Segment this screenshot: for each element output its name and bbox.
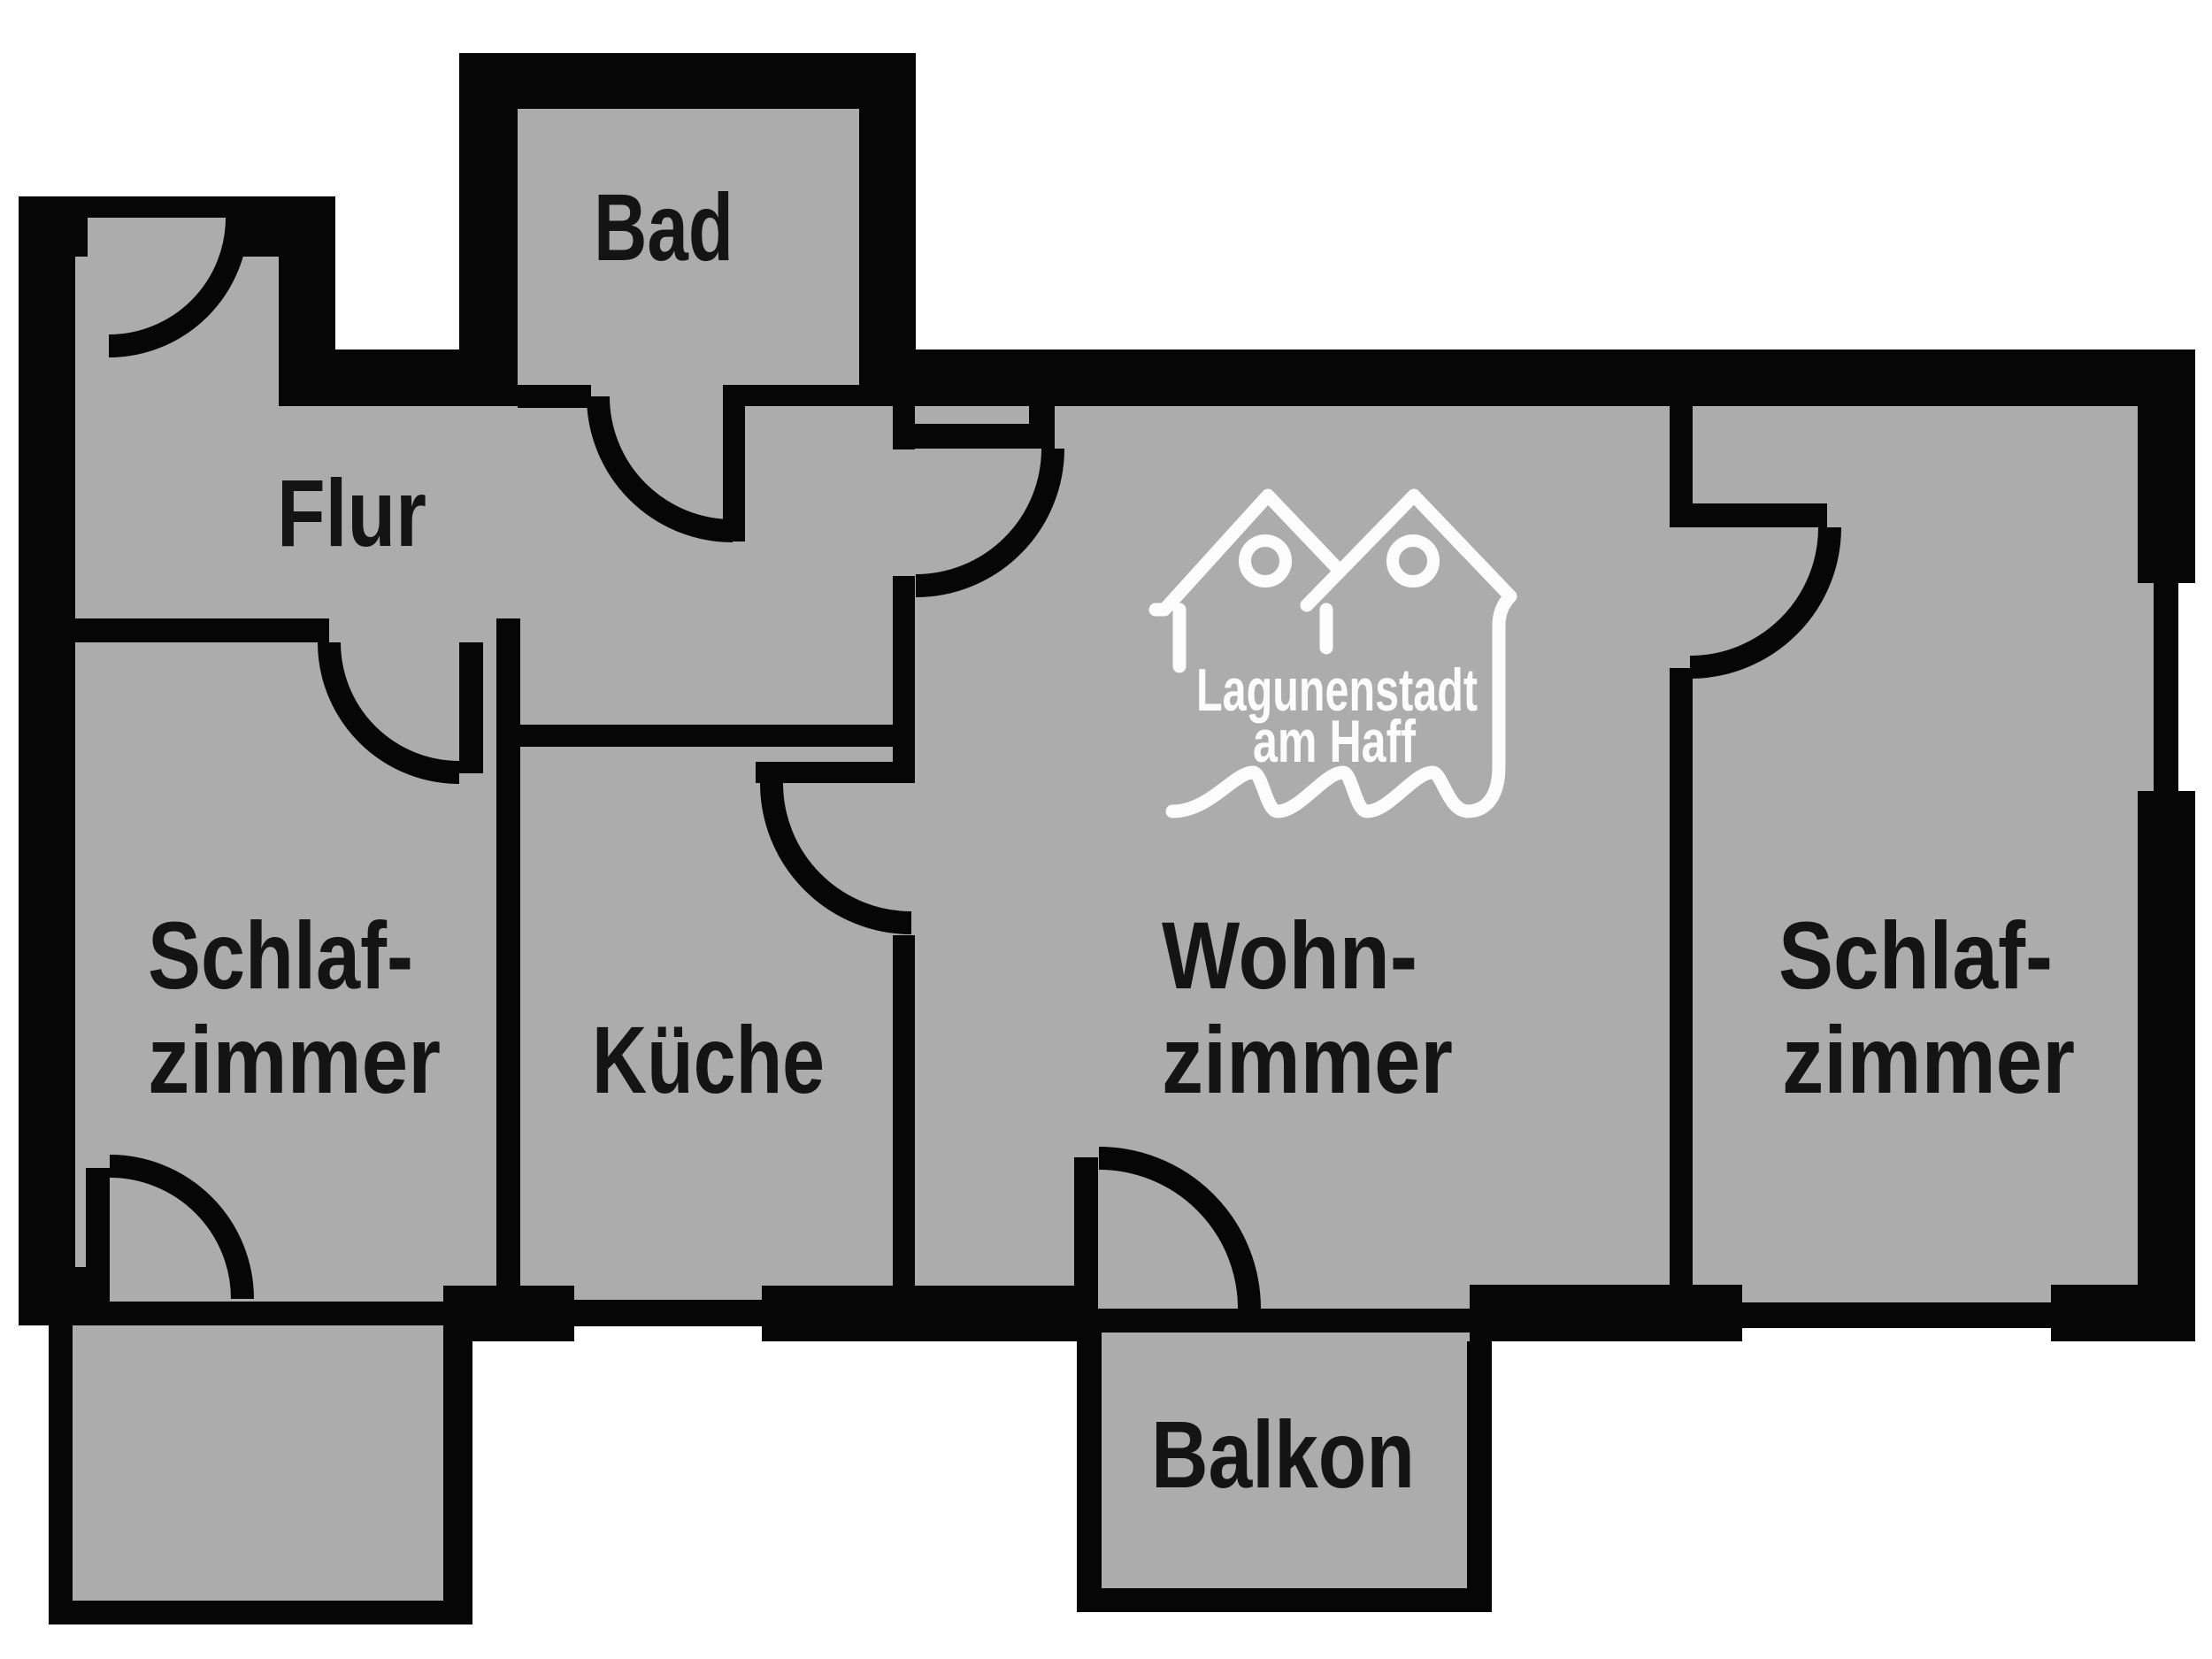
svg-text:am Haff: am Haff bbox=[1253, 708, 1416, 775]
svg-text:Balkon: Balkon bbox=[1151, 1401, 1415, 1508]
svg-text:Wohn-: Wohn- bbox=[1162, 902, 1417, 1009]
svg-text:Schlaf-: Schlaf- bbox=[1778, 902, 2053, 1009]
svg-text:zimmer: zimmer bbox=[148, 1006, 441, 1113]
svg-text:Bad: Bad bbox=[594, 173, 733, 280]
svg-text:Schlaf-: Schlaf- bbox=[148, 902, 413, 1009]
svg-text:Küche: Küche bbox=[592, 1006, 825, 1113]
svg-text:zimmer: zimmer bbox=[1782, 1006, 2075, 1113]
svg-text:zimmer: zimmer bbox=[1162, 1006, 1453, 1113]
svg-text:Flur: Flur bbox=[277, 459, 426, 566]
